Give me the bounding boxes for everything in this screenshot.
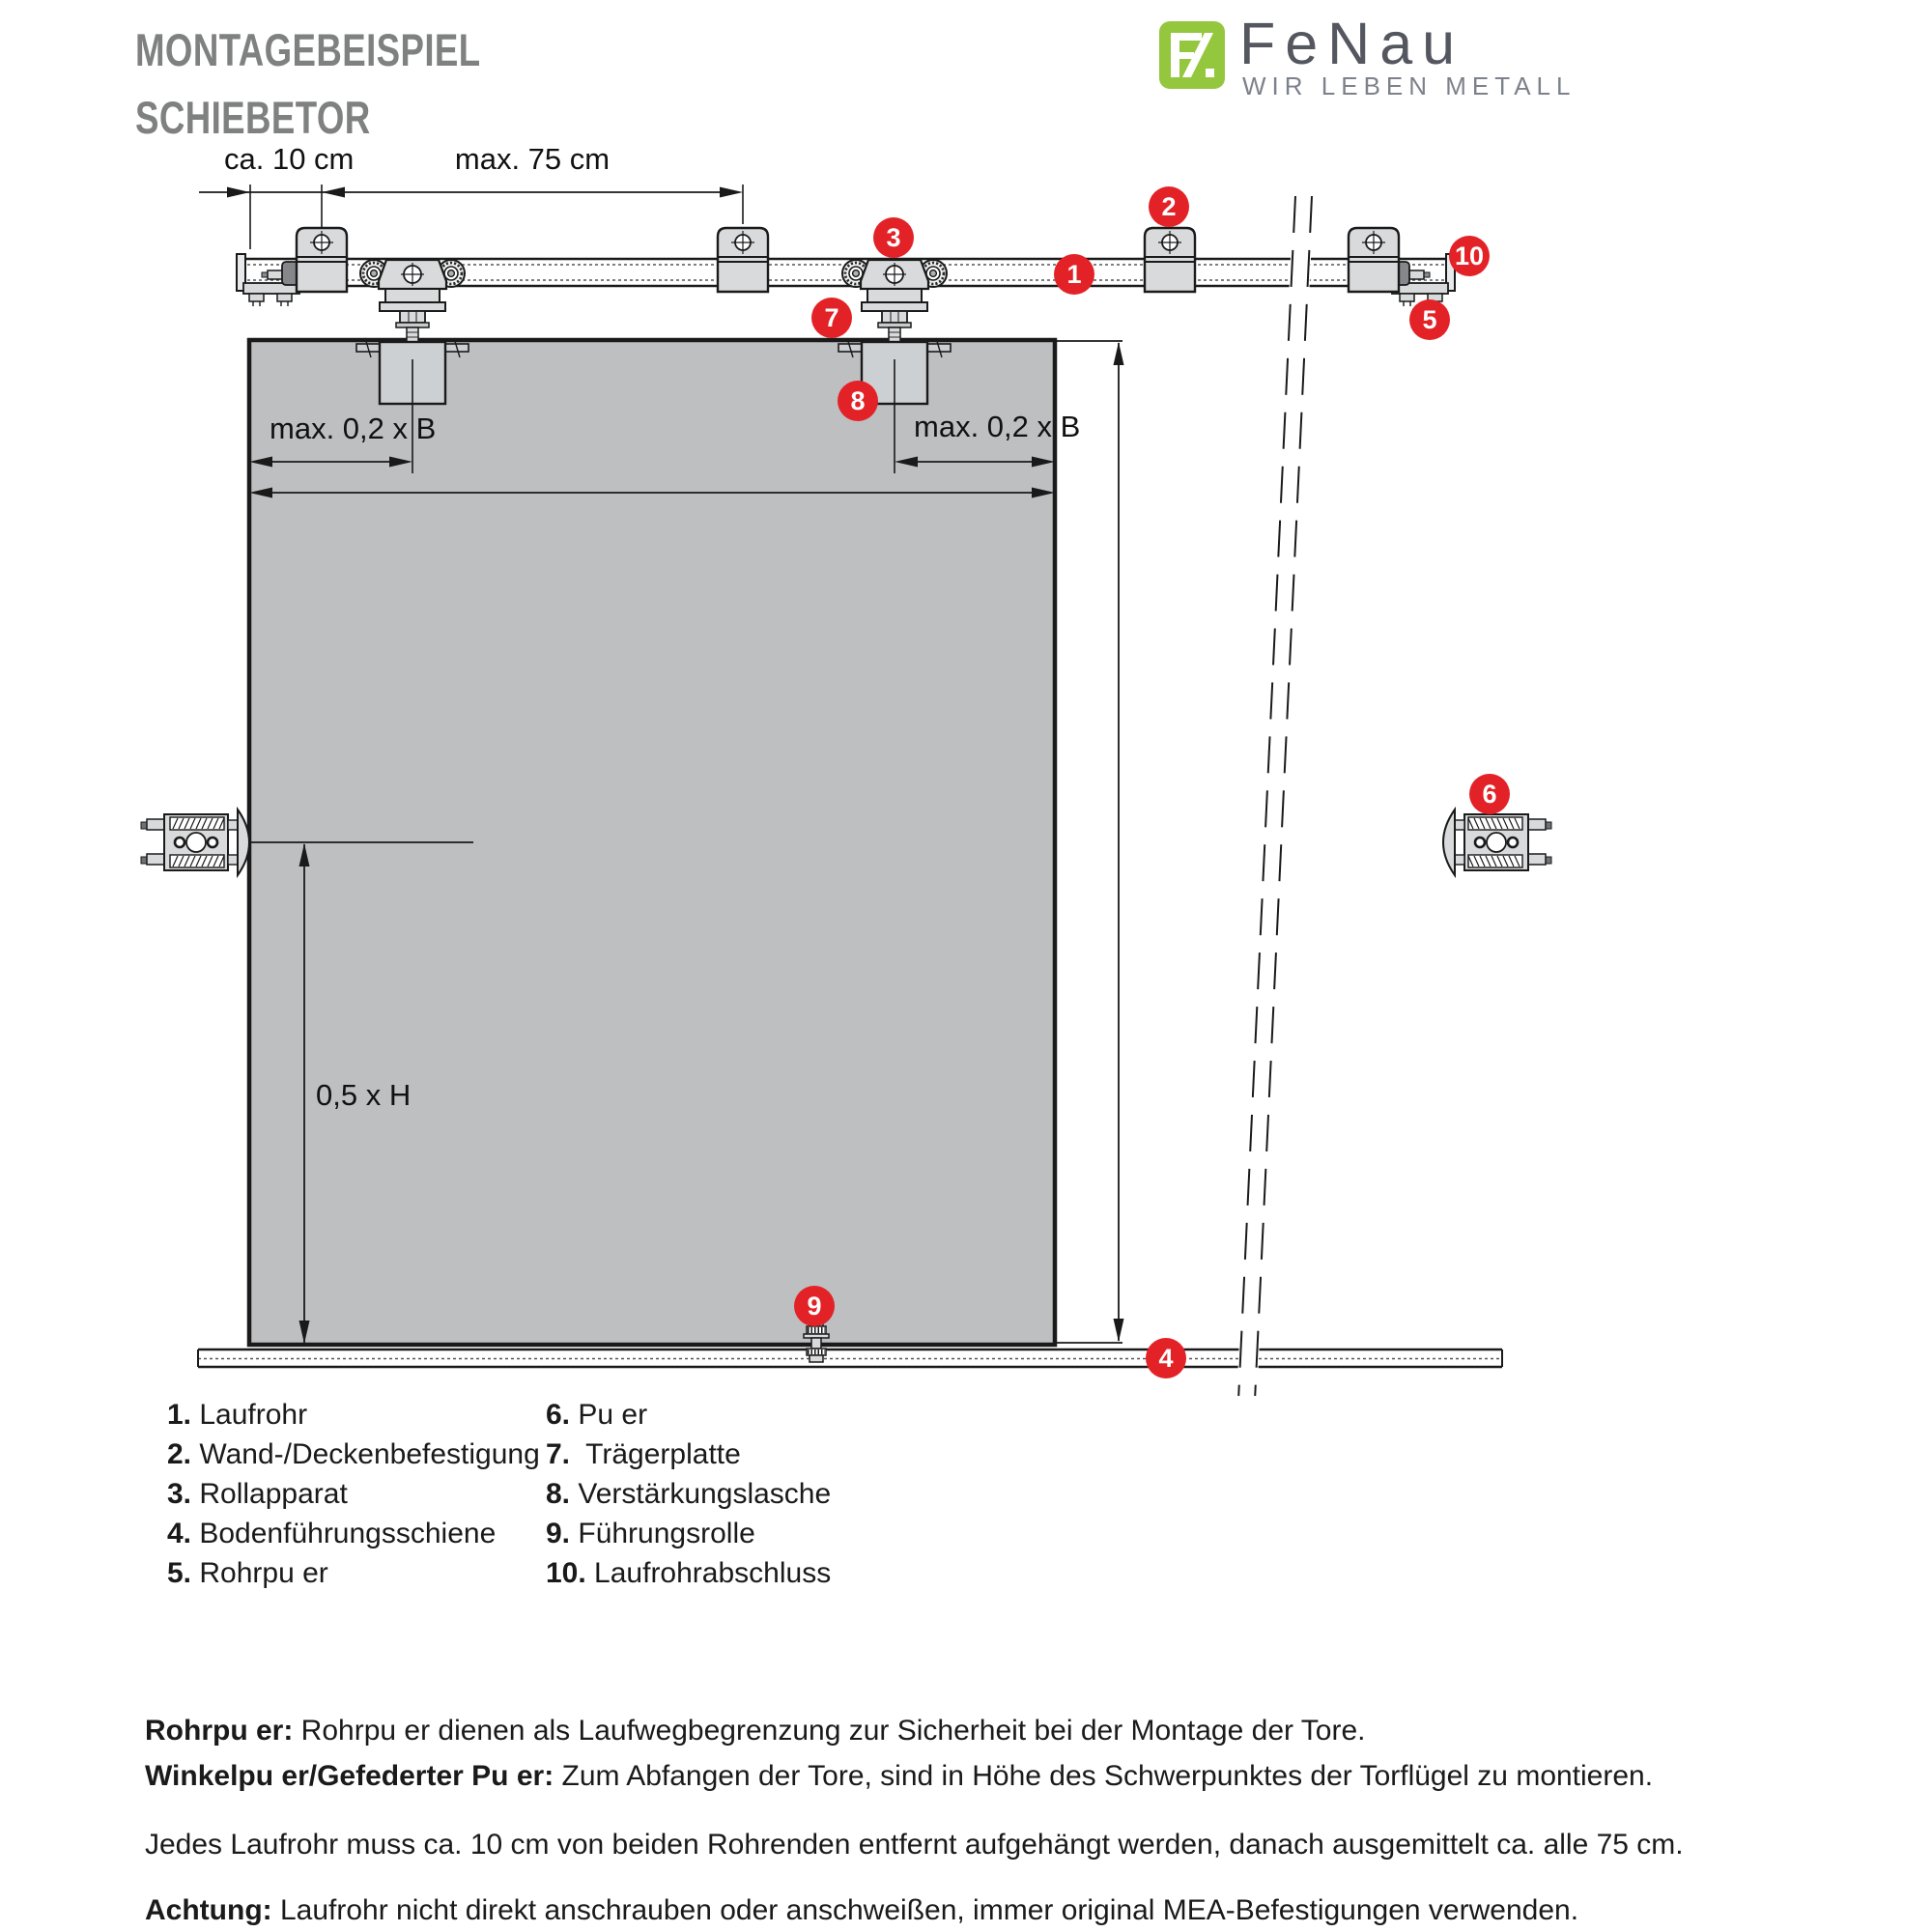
dim-label-max-75cm: max. 75 cm: [440, 142, 624, 177]
callout-badge-1: 1: [1054, 254, 1094, 295]
legend-col-left: 1. Laufrohr2. Wand-/Deckenbefestigung3. …: [167, 1395, 540, 1593]
callout-badge-9: 9: [794, 1286, 835, 1326]
wall-bracket-2: [718, 228, 768, 292]
callout-badge-6: 6: [1469, 774, 1510, 814]
callout-badge-3: 3: [873, 217, 914, 258]
callout-badge-4: 4: [1146, 1338, 1186, 1378]
callout-badge-10: 10: [1449, 236, 1490, 276]
montage-diagram: [0, 0, 1932, 1396]
note-3: Jedes Laufrohr muss ca. 10 cm von beiden…: [145, 1829, 1684, 1861]
dim-door-height: [1055, 341, 1124, 1343]
dim-hanger-spacing: [199, 185, 743, 249]
wall-bracket-3: [1145, 228, 1195, 292]
legend-item: 6. Pu er: [546, 1395, 831, 1435]
legend-item: 9. Führungsrolle: [546, 1514, 831, 1553]
callout-badge-7: 7: [811, 298, 852, 338]
wall-bracket-1: [297, 228, 347, 292]
floor-guide-rail: [198, 1350, 1502, 1367]
note-2: Winkelpu er/Gefederter Pu er: Zum Abfang…: [145, 1760, 1653, 1793]
note-4: Achtung: Laufrohr nicht direkt anschraub…: [145, 1894, 1578, 1927]
break-lines: [1235, 196, 1314, 1396]
legend-item: 8. Verstärkungslasche: [546, 1474, 831, 1514]
page: MONTAGEBEISPIEL SCHIEBETOR FeNau WIR LEB…: [0, 0, 1932, 1932]
legend-item: 10. Laufrohrabschluss: [546, 1553, 831, 1593]
note-1: Rohrpu er: Rohrpu er dienen als Laufwegb…: [145, 1715, 1365, 1747]
legend-item: 2. Wand-/Deckenbefestigung: [167, 1435, 540, 1474]
spring-buffer-right: [1443, 810, 1551, 875]
legend-col-right: 6. Pu er7. Trägerplatte8. Verstärkungsla…: [546, 1395, 831, 1593]
legend-item: 7. Trägerplatte: [546, 1435, 831, 1474]
wall-bracket-4: [1349, 228, 1399, 292]
dim-label-05h: 0,5 x H: [316, 1078, 411, 1113]
legend-item: 3. Rollapparat: [167, 1474, 540, 1514]
spring-buffer-left: [141, 810, 249, 875]
legend-item: 5. Rohrpu er: [167, 1553, 540, 1593]
callout-badge-2: 2: [1149, 186, 1189, 227]
callout-badge-5: 5: [1409, 299, 1450, 340]
legend-item: 4. Bodenführungsschiene: [167, 1514, 540, 1553]
callout-badge-8: 8: [838, 381, 878, 421]
dim-label-02b-right: max. 0,2 x B: [914, 410, 1080, 444]
dim-label-ca-10cm: ca. 10 cm: [224, 142, 350, 177]
dim-label-02b-left: max. 0,2 x B: [270, 412, 436, 446]
legend-item: 1. Laufrohr: [167, 1395, 540, 1435]
